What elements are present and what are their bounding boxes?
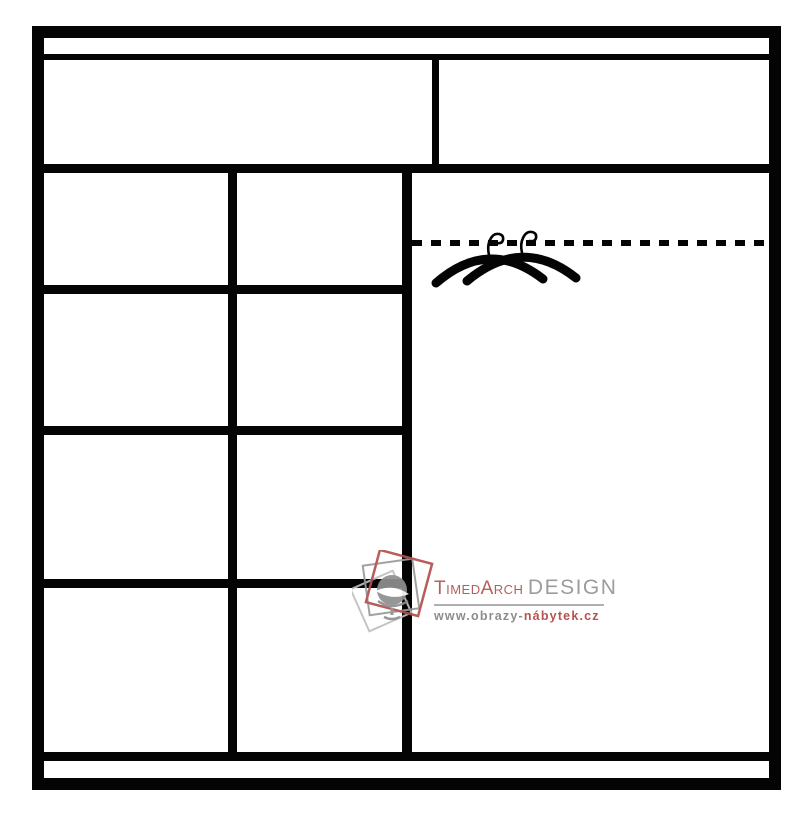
wardrobe-schematic: TimedArch DESIGN www.obrazy-nábytek.cz <box>0 0 811 817</box>
watermark-text: TimedArch DESIGN www.obrazy-nábytek.cz <box>434 576 614 624</box>
brand-line: TimedArch DESIGN <box>434 576 614 602</box>
watermark-url: www.obrazy-nábytek.cz <box>434 609 614 624</box>
shelf-cell-row2-col2 <box>237 294 402 426</box>
shelf-column-divider <box>228 173 237 752</box>
clothes-hangers-icon <box>424 222 592 294</box>
shelf-line-3 <box>44 579 402 588</box>
top-section-divider <box>432 60 439 164</box>
brand-design-text: DESIGN <box>528 576 618 599</box>
brand-name-text: TimedArch <box>434 578 523 599</box>
bottom-shelf-line <box>44 752 769 761</box>
shelf-cell-row1-col2 <box>237 174 402 285</box>
top-compartment-left <box>44 60 432 164</box>
shelf-line-1 <box>44 285 402 294</box>
plinth-strip <box>44 761 769 778</box>
shelf-cell-row2-col1 <box>44 294 228 426</box>
shelf-cell-row1-col1 <box>44 174 228 285</box>
watermark-logo-squares-icon <box>352 550 438 638</box>
top-shelf-line <box>44 164 769 173</box>
frame-top <box>32 26 781 38</box>
top-strip <box>44 38 769 54</box>
frame-left <box>32 26 44 790</box>
shelf-cell-row4-col1 <box>44 588 228 752</box>
url-prefix-text: www.obrazy- <box>434 609 524 623</box>
frame-bottom <box>32 778 781 790</box>
main-vertical-divider <box>402 173 412 752</box>
top-compartment-right <box>439 60 769 164</box>
watermark-divider-rule <box>434 604 604 606</box>
shelf-line-2 <box>44 426 402 435</box>
shelf-cell-row3-col1 <box>44 435 228 579</box>
watermark: TimedArch DESIGN www.obrazy-nábytek.cz <box>350 548 620 638</box>
url-suffix-text: nábytek.cz <box>524 609 600 623</box>
frame-right <box>769 26 781 790</box>
